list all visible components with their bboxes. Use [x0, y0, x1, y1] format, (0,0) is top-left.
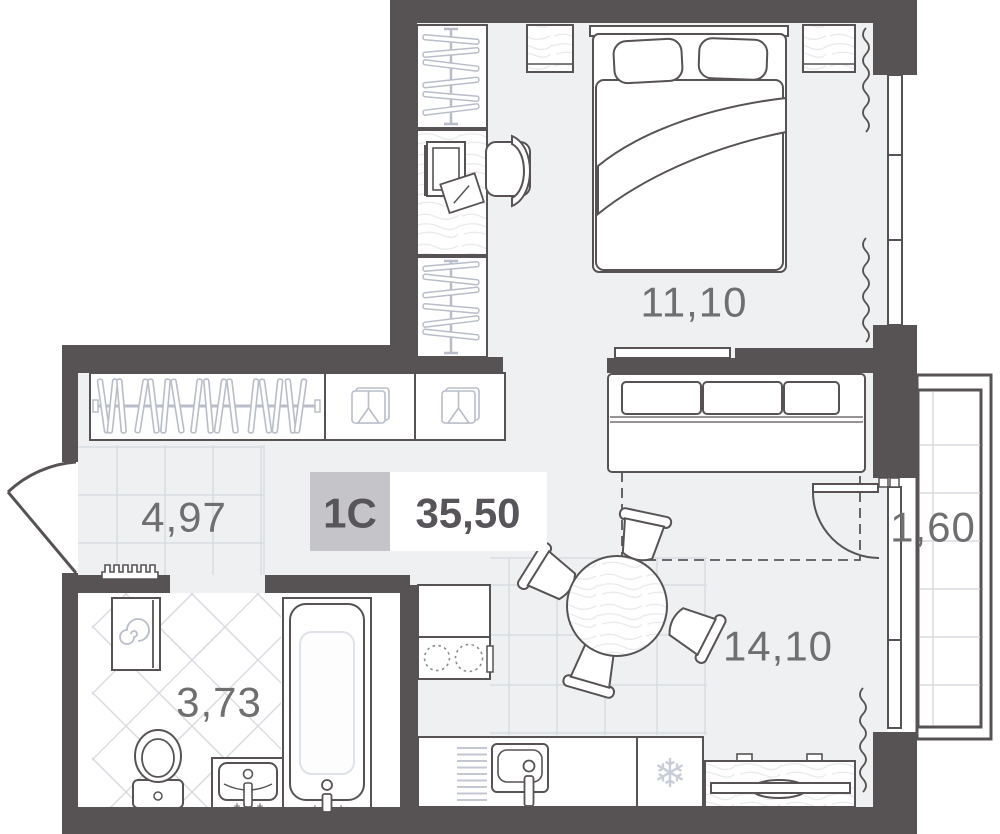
sofa [608, 374, 865, 472]
desk-chair [486, 136, 530, 206]
washing-machine [112, 598, 160, 670]
bathroom-sink: + + [212, 758, 283, 813]
unit-total-area-label: 35,50 [415, 490, 520, 537]
pillow [613, 38, 683, 84]
hallway-area-label: 4,97 [141, 494, 227, 541]
floor-plan: + + ❄ + + [0, 0, 1000, 834]
bathtub: + + [283, 598, 371, 815]
bedroom-area-label: 11,10 [641, 279, 748, 326]
unit-type-label: 1С [323, 490, 377, 537]
bedroom-wardrobe-bottom [417, 257, 487, 357]
bedroom-passage-floor [503, 357, 607, 373]
cold-water-mark: + [538, 802, 545, 816]
bathroom-area-label: 3,73 [176, 679, 262, 726]
stove [418, 637, 493, 679]
nightstand-right [803, 25, 855, 72]
bedroom-window [873, 75, 917, 325]
balcony-area-label: 1,60 [890, 504, 976, 551]
bed [590, 26, 788, 272]
kitchen-counter [418, 585, 490, 637]
cold-water-mark: + [256, 799, 263, 813]
balcony [917, 375, 991, 739]
hot-water-mark: + [311, 801, 318, 815]
hot-water-mark: + [513, 802, 520, 816]
entrance-opening [62, 462, 78, 573]
tv-console [705, 754, 855, 807]
hot-water-mark: + [233, 799, 240, 813]
floor-plan-svg: + + ❄ + + [0, 0, 1000, 834]
faucet-icon [244, 770, 253, 779]
dining-table [567, 556, 667, 656]
unit-badge: 1С 35,50 [310, 472, 547, 551]
cold-water-mark: + [337, 801, 344, 815]
fridge: ❄ [637, 737, 703, 807]
folded-clothes-icon [442, 388, 479, 423]
faucet-icon [524, 761, 535, 772]
pillow [698, 38, 767, 80]
living-kitchen-area-label: 14,10 [723, 623, 833, 670]
toilet [133, 730, 183, 808]
faucet-icon [322, 780, 332, 790]
hall-wardrobe [90, 373, 505, 440]
window-glazing [888, 75, 902, 325]
folded-clothes-icon [352, 388, 389, 423]
nightstand-left [527, 25, 573, 72]
tv-icon [711, 783, 850, 793]
desk [417, 130, 487, 255]
bathroom-door-floor [170, 575, 265, 593]
sliding-door-panel [615, 348, 730, 358]
bedroom-wardrobe-top [417, 25, 487, 128]
snowflake-icon: ❄ [653, 752, 687, 796]
